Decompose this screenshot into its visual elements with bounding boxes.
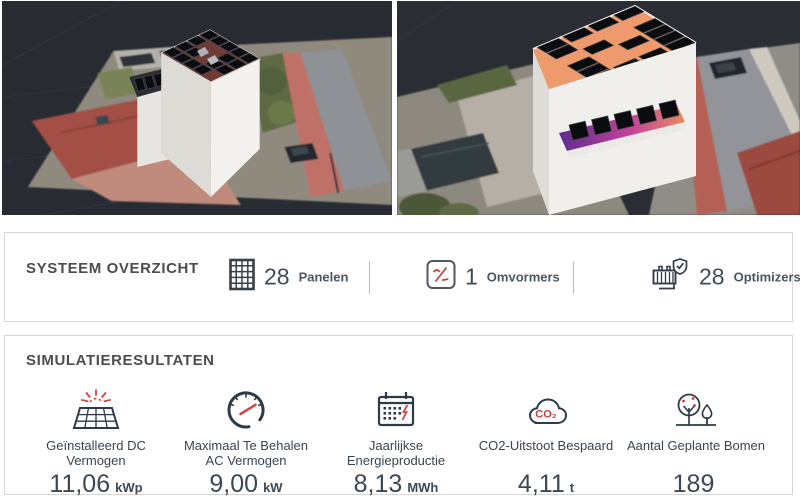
inverters-count: 1: [465, 264, 478, 291]
solar-panels-grid-icon: [229, 259, 255, 296]
metric-co2-saved: CO₂ CO2-Uitstoot Bespaard 4,11 t: [471, 386, 621, 499]
metric-dc-power: Geïnstalleerd DC Vermogen 11,06 kWp: [21, 386, 171, 499]
calendar-energy-icon: [321, 386, 471, 432]
divider: [369, 261, 370, 294]
metric-label: CO2-Uitstoot Bespaard: [471, 439, 621, 469]
optimizers-stat: 28 Optimizers: [650, 257, 800, 298]
metric-unit: t: [570, 480, 574, 495]
panels-count: 28: [264, 264, 290, 291]
metric-value: 11,06: [49, 470, 110, 499]
system-overview-title: SYSTEEM OVERZICHT: [26, 260, 199, 277]
divider: [573, 261, 574, 294]
co2-icon-text: CO₂: [535, 409, 557, 421]
optimizers-label: Optimizers: [734, 270, 800, 285]
simulation-results-title: SIMULATIERESULTATEN: [26, 352, 215, 369]
metric-label: Maximaal Te Behalen AC Vermogen: [171, 439, 321, 469]
metric-planted-trees: Aantal Geplante Bomen 189: [621, 386, 771, 499]
viewport-row: [0, 0, 800, 215]
metric-unit: MWh: [407, 480, 438, 495]
optimizers-count: 28: [699, 264, 725, 291]
panels-stat: 28 Panelen: [229, 259, 348, 296]
metric-label: Jaarlijkse Energieproductie: [321, 439, 471, 469]
simulation-results-card: SIMULATIERESULTATEN Geïnstalleerd DC Ver…: [4, 335, 793, 495]
right-3d-scene: [397, 1, 800, 215]
co2-cloud-icon: CO₂: [471, 386, 621, 432]
metric-label: Geïnstalleerd DC Vermogen: [21, 439, 171, 469]
right-3d-viewport[interactable]: [397, 1, 800, 215]
metric-value: 9,00: [209, 470, 258, 499]
metric-unit: kWp: [115, 480, 142, 495]
system-overview-card: SYSTEEM OVERZICHT 28 Panelen 1 Omvormers: [4, 232, 793, 322]
metrics-row: Geïnstalleerd DC Vermogen 11,06 kWp Maxi…: [21, 386, 771, 499]
inverters-stat: 1 Omvormers: [426, 260, 560, 295]
left-3d-viewport[interactable]: [2, 1, 392, 215]
inverters-label: Omvormers: [487, 270, 560, 285]
metric-label: Aantal Geplante Bomen: [621, 439, 771, 469]
metric-unit: kW: [263, 480, 283, 495]
optimizer-icon: [650, 257, 690, 298]
inverter-icon: [426, 260, 456, 295]
metric-value: 4,11: [518, 470, 565, 499]
trees-icon: [621, 386, 771, 432]
panels-label: Panelen: [299, 270, 349, 285]
metric-annual-energy: Jaarlijkse Energieproductie 8,13 MWh: [321, 386, 471, 499]
metric-value: 8,13: [354, 470, 403, 499]
gauge-icon: [171, 386, 321, 432]
solar-panel-sun-icon: [21, 386, 171, 432]
left-3d-scene: [2, 1, 392, 215]
metric-ac-power: Maximaal Te Behalen AC Vermogen 9,00 kW: [171, 386, 321, 499]
metric-value: 189: [673, 470, 715, 499]
